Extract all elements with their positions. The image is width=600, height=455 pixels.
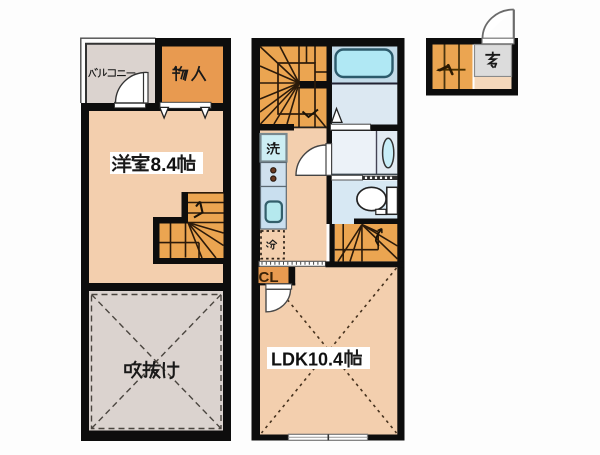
- svg-text:8.4: 8.4: [151, 155, 178, 176]
- svg-text:LDK10.4: LDK10.4: [271, 350, 343, 370]
